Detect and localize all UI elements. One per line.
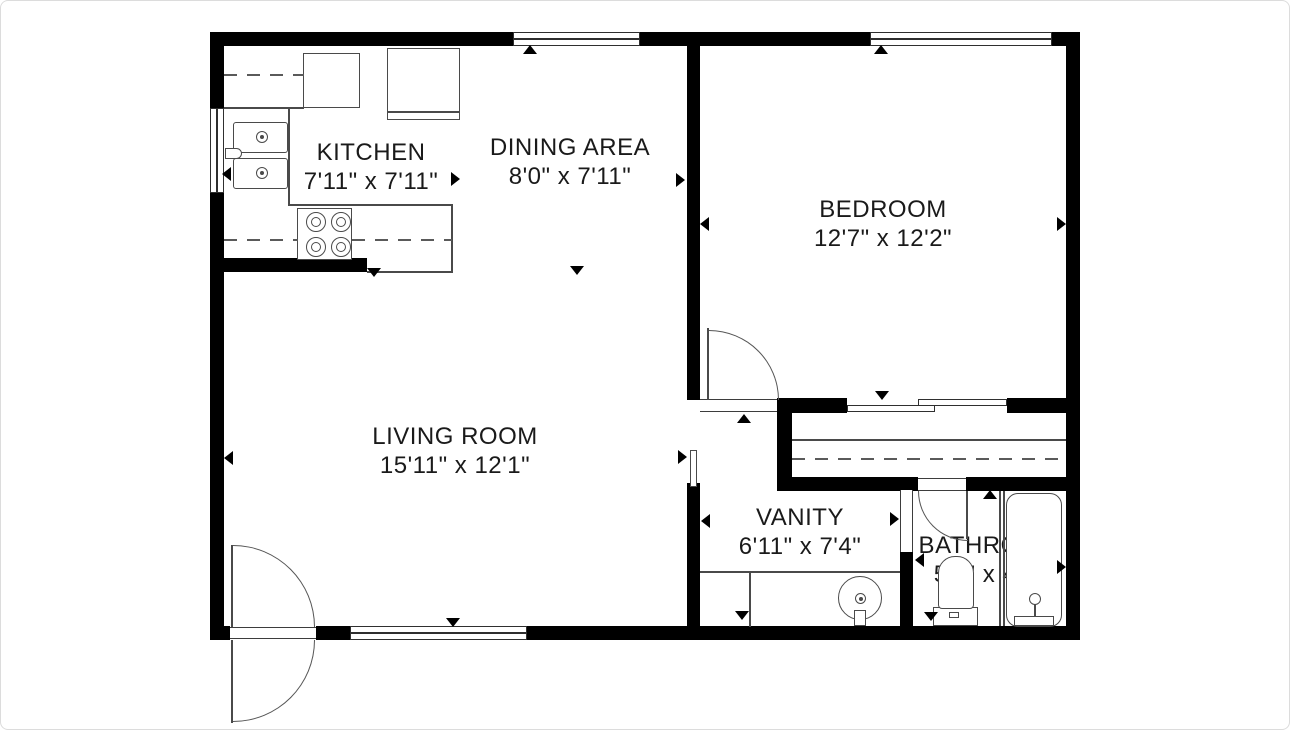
- entry-door-swing-arc-inside: [233, 545, 315, 627]
- dimension-arrow-closet-down: [875, 391, 889, 400]
- bedroom-dims: 12'7" x 12'2": [814, 224, 952, 253]
- vanity-faucet: [854, 610, 866, 626]
- sink-drain-upper-dot: [260, 135, 264, 139]
- wall-bottom-right: [527, 626, 1080, 640]
- dining-name: DINING AREA: [490, 133, 650, 162]
- wall-living-vanity: [687, 483, 700, 626]
- dimension-arrow-living-down: [446, 618, 460, 627]
- wall-top-left: [210, 32, 513, 46]
- wall-bottom-left: [210, 626, 230, 640]
- dimension-arrow-bedroom-up: [874, 45, 888, 54]
- vanity-dims: 6'11" x 7'4": [739, 532, 862, 561]
- counter-edge-upper-left: [224, 107, 304, 109]
- burner-top-left-inner: [311, 217, 321, 227]
- kitchen-label: KITCHEN 7'11" x 7'11": [304, 138, 439, 196]
- dimension-arrow-bathroom-down: [924, 612, 938, 621]
- living-vanity-opening-frame: [690, 450, 697, 487]
- refrigerator-front-line: [388, 111, 459, 113]
- closet-shelf-dashed-line: [792, 458, 1066, 460]
- vanity-name: VANITY: [739, 503, 862, 532]
- dimension-arrow-dining-up: [523, 45, 537, 54]
- dimension-arrow-kitchen-down: [367, 268, 381, 277]
- counter-edge-top: [288, 204, 453, 206]
- dimension-arrow-bathroom-up: [983, 490, 997, 499]
- bathtub-drain-base: [1014, 616, 1054, 626]
- entry-door-swing-arc-outside: [233, 640, 315, 722]
- dining-dims: 8'0" x 7'11": [490, 162, 650, 191]
- wall-slider-right-stub: [1007, 398, 1066, 413]
- dishwasher-box: [303, 53, 360, 108]
- vanity-bathroom-opening: [900, 490, 913, 552]
- bedroom-door-threshold: [700, 399, 777, 412]
- sink-drain-lower-dot: [260, 171, 264, 175]
- wall-left-upper: [210, 32, 224, 108]
- wall-bottom-entry-stub: [316, 626, 350, 640]
- dimension-arrow-living-right: [678, 450, 687, 464]
- wall-bedroom-divider: [687, 46, 700, 400]
- burner-top-right-inner: [336, 217, 346, 227]
- dimension-arrow-bathroom-right: [1057, 560, 1066, 574]
- dimension-arrow-kitchen-left: [222, 167, 231, 181]
- window-bedroom: [870, 32, 1052, 46]
- dimension-arrow-living-left: [224, 451, 233, 465]
- living-room-name: LIVING ROOM: [372, 422, 538, 451]
- bathroom-fixture-divider: [999, 491, 1001, 626]
- counter-edge-vertical: [288, 108, 290, 205]
- kitchen-faucet: [225, 148, 242, 159]
- dimension-arrow-bedroom-right: [1057, 217, 1066, 231]
- closet-rod-line: [792, 439, 1066, 441]
- dining-label: DINING AREA 8'0" x 7'11": [490, 133, 650, 191]
- dimension-arrow-kitchen-right: [451, 172, 460, 186]
- window-dining: [513, 32, 640, 46]
- wall-top-middle: [640, 32, 870, 46]
- dimension-arrow-vanity-left: [701, 514, 710, 528]
- closet-sliding-door-front: [847, 405, 935, 412]
- wall-kitchen-stub: [210, 258, 367, 272]
- vanity-sink-drain-dot: [859, 597, 863, 601]
- wall-closet-bottom-left: [777, 477, 918, 491]
- dimension-arrow-dining-down: [570, 266, 584, 275]
- toilet-bowl: [938, 556, 974, 609]
- wall-closet-bottom-right: [966, 477, 1066, 491]
- dimension-arrow-dining-right: [676, 173, 685, 187]
- dimension-arrow-bedroom-left: [700, 217, 709, 231]
- living-room-label: LIVING ROOM 15'11" x 12'1": [372, 422, 538, 480]
- counter-dashed-bottom-left: [224, 239, 298, 241]
- bathroom-door-threshold: [918, 478, 966, 491]
- bedroom-label: BEDROOM 12'7" x 12'2": [814, 195, 952, 253]
- kitchen-name: KITCHEN: [304, 138, 439, 167]
- wall-right: [1066, 32, 1080, 640]
- counter-dashed-bottom-right: [352, 239, 452, 241]
- bedroom-door-swing-arc: [709, 330, 779, 400]
- floor-plan: KITCHEN 7'11" x 7'11" DINING AREA 8'0" x…: [0, 0, 1290, 730]
- refrigerator-box: [387, 48, 460, 120]
- kitchen-dims: 7'11" x 7'11": [304, 167, 439, 196]
- bathtub-faucet-stem: [1034, 604, 1036, 616]
- burner-bottom-left-inner: [311, 242, 321, 252]
- burner-bottom-right-inner: [336, 242, 346, 252]
- wall-vanity-bathroom: [900, 552, 913, 626]
- vanity-label: VANITY 6'11" x 7'4": [739, 503, 862, 561]
- vanity-counter-line: [700, 571, 900, 573]
- dimension-arrow-hall-up: [737, 414, 751, 423]
- dimension-arrow-vanity-right: [890, 512, 899, 526]
- window-living: [350, 626, 527, 640]
- dimension-arrow-bathroom-left: [915, 553, 924, 567]
- bathroom-fixture-divider-2: [1003, 491, 1005, 626]
- bedroom-name: BEDROOM: [814, 195, 952, 224]
- entry-door-threshold: [230, 627, 316, 639]
- living-room-dims: 15'11" x 12'1": [372, 451, 538, 480]
- vanity-counter-divider: [749, 572, 751, 627]
- toilet-handle: [949, 612, 959, 618]
- dimension-arrow-vanity-down: [735, 611, 749, 620]
- counter-dashed-top: [224, 74, 304, 76]
